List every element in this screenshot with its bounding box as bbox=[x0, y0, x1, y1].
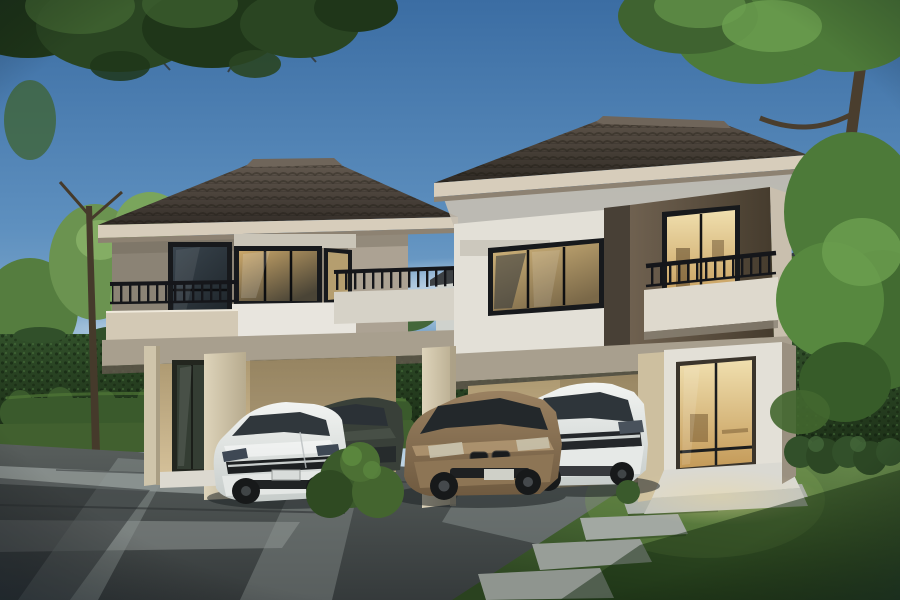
vignette bbox=[0, 0, 900, 600]
scene-viewport: Dusk 3D rendering of a pair of modern tw… bbox=[0, 0, 900, 600]
architectural-rendering bbox=[0, 0, 900, 600]
